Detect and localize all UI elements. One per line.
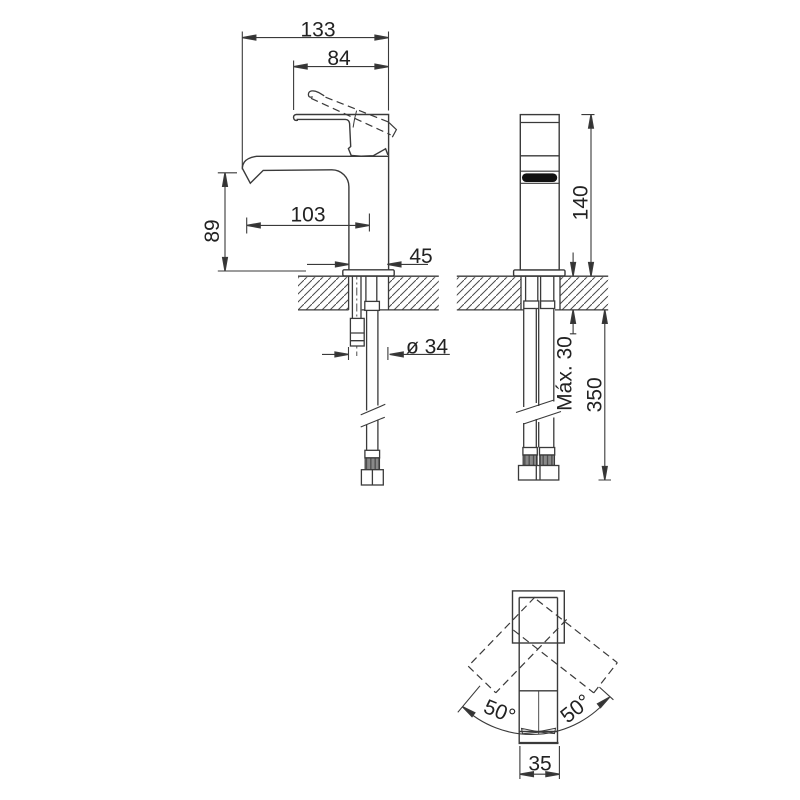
svg-text:103: 103: [290, 204, 325, 227]
svg-text:84: 84: [327, 47, 351, 70]
svg-text:35: 35: [528, 752, 551, 775]
svg-text:45: 45: [409, 245, 432, 268]
svg-text:89: 89: [201, 219, 224, 242]
svg-text:ø 34: ø 34: [406, 336, 448, 359]
svg-text:140: 140: [570, 185, 593, 220]
svg-text:350: 350: [584, 377, 607, 412]
svg-text:50°: 50°: [556, 690, 595, 728]
svg-text:Máx. 30: Máx. 30: [554, 336, 577, 411]
svg-text:133: 133: [300, 18, 335, 41]
